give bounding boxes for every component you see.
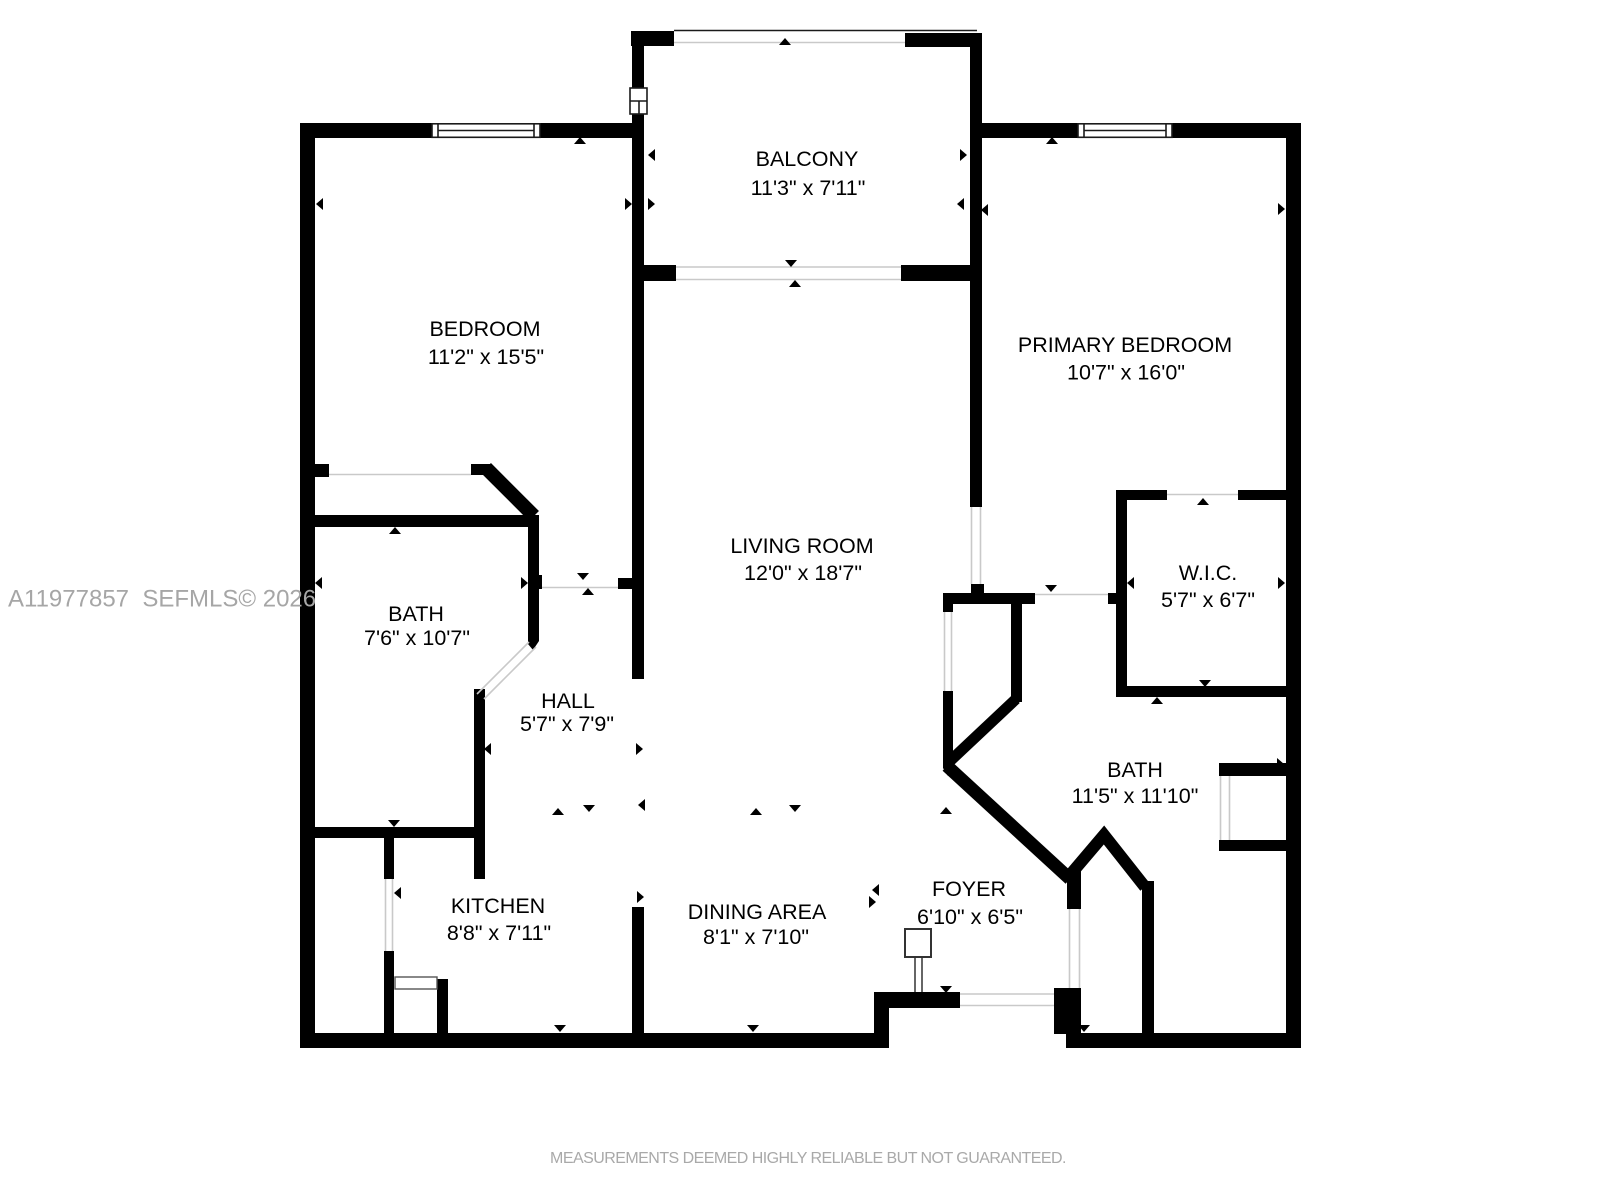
svg-text:PRIMARY BEDROOM: PRIMARY BEDROOM — [1018, 333, 1232, 357]
svg-text:KITCHEN: KITCHEN — [451, 894, 545, 918]
svg-text:11'3" x 7'11": 11'3" x 7'11" — [751, 176, 866, 200]
svg-text:5'7" x 7'9": 5'7" x 7'9" — [520, 712, 614, 736]
svg-text:BATH: BATH — [388, 602, 444, 626]
svg-text:6'10" x 6'5": 6'10" x 6'5" — [917, 905, 1023, 929]
svg-text:11'5" x 11'10": 11'5" x 11'10" — [1072, 784, 1199, 808]
svg-text:FOYER: FOYER — [932, 877, 1006, 901]
svg-text:12'0" x 18'7": 12'0" x 18'7" — [744, 561, 862, 585]
svg-text:10'7" x 16'0": 10'7" x 16'0" — [1067, 361, 1185, 385]
svg-text:8'1" x 7'10": 8'1" x 7'10" — [703, 925, 809, 949]
svg-text:LIVING ROOM: LIVING ROOM — [730, 534, 873, 558]
svg-text:8'8" x 7'11": 8'8" x 7'11" — [447, 921, 551, 945]
svg-text:W.I.C.: W.I.C. — [1179, 561, 1238, 585]
svg-text:A11977857 SEFMLS© 2026: A11977857 SEFMLS© 2026 — [8, 586, 316, 613]
svg-text:BATH: BATH — [1107, 758, 1163, 782]
svg-text:BALCONY: BALCONY — [756, 147, 859, 171]
svg-text:DINING AREA: DINING AREA — [688, 900, 827, 924]
svg-text:MEASUREMENTS DEEMED HIGHLY REL: MEASUREMENTS DEEMED HIGHLY RELIABLE BUT … — [550, 1150, 1066, 1167]
svg-text:5'7" x 6'7": 5'7" x 6'7" — [1161, 588, 1255, 612]
svg-text:HALL: HALL — [541, 689, 595, 713]
svg-text:BEDROOM: BEDROOM — [429, 317, 540, 341]
svg-text:11'2" x 15'5": 11'2" x 15'5" — [428, 345, 544, 369]
svg-text:7'6" x 10'7": 7'6" x 10'7" — [364, 626, 470, 650]
